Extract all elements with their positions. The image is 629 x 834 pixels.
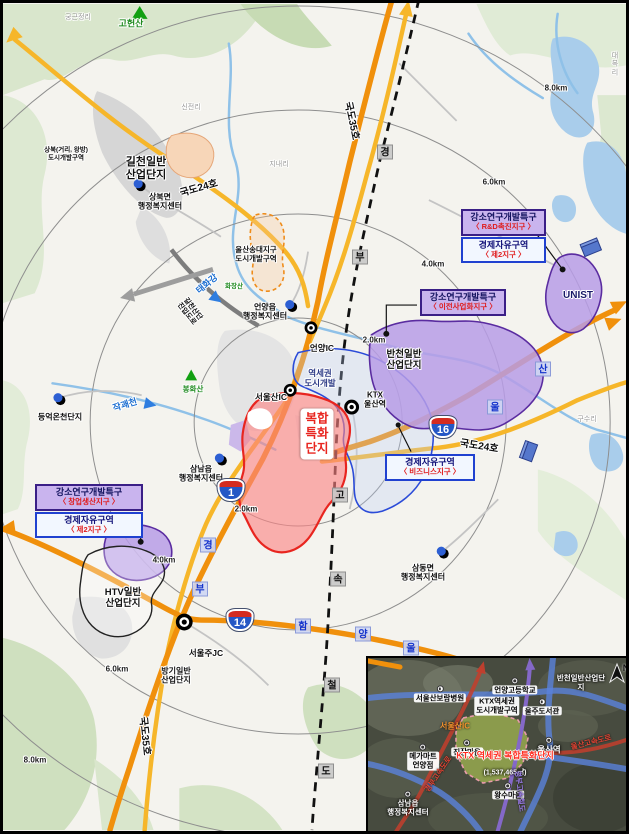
ring-label-4km-sw: 4.0km bbox=[153, 555, 176, 564]
ring-label-2km-sw: 2.0km bbox=[235, 504, 258, 513]
site-label-yeokse-zone: 역세권 도시개발 bbox=[304, 368, 335, 388]
map-pin-icon bbox=[419, 744, 426, 751]
site-label-gilcheon: 길천일반 산업단지 bbox=[126, 156, 166, 182]
business-fez-box-wrap: 경제자유구역 〈 비즈니스지구 〉 bbox=[385, 454, 475, 482]
facility-label-samnam-center: 삼남읍 행정복지센터 bbox=[179, 465, 223, 484]
facility-label-eonyang-center: 언양읍 행정복지센터 bbox=[243, 303, 287, 322]
ulsanhwy-char-san: 산 bbox=[535, 362, 551, 377]
site-label-htv: HTV일반 산업단지 bbox=[105, 587, 141, 609]
inset-label-boram-hospital: 서울산보람병원 bbox=[414, 685, 466, 702]
gyeongbu-char-bu: 부 bbox=[192, 582, 208, 597]
map-pin-icon bbox=[437, 685, 444, 692]
mountain-label-goheonsan: 고헌산 bbox=[119, 19, 144, 30]
facility-label-sangbuk-center: 상북면 행정복지센터 bbox=[138, 193, 182, 212]
ulsanhwy-char-ul: 울 bbox=[487, 400, 503, 415]
htv-zone-boxes: 강소연구개발특구 〈 창업생산지구 〉 경제자유구역 〈 제2지구 〉 bbox=[35, 484, 143, 539]
satellite-inset-map: 서울산보람병원 언양고등학교 반천일반산업단지 울주도서관 KTX역세권 도시개… bbox=[366, 656, 629, 834]
inset-label-seoulsan-ic: 서울산IC bbox=[440, 721, 470, 732]
inset-label-samnam-center: 삼남읍 행정복지센터 bbox=[387, 791, 428, 818]
business-fez-sub: 〈 비즈니스지구 〉 bbox=[389, 468, 471, 476]
inset-north-label: N bbox=[623, 663, 629, 673]
deungeok-marker bbox=[53, 393, 65, 405]
bancheon-sez-sub: 〈 이전사업화지구 〉 bbox=[424, 303, 502, 311]
place-label-jinae: 지내리 bbox=[269, 161, 288, 169]
map-pin-icon bbox=[539, 698, 546, 705]
facility-label-ktx-station: KTX 울산역 bbox=[364, 391, 386, 410]
ktx-station-marker bbox=[344, 400, 359, 415]
sangbuk-zone-polygon bbox=[166, 133, 214, 178]
mountain-label-hwajangsan: 화장산 bbox=[225, 283, 243, 291]
site-label-bancheon: 반천일반 산업단지 bbox=[387, 349, 422, 371]
site-label-banggi: 방기일반 산업단지 bbox=[161, 667, 190, 686]
building-icon-1 bbox=[580, 238, 601, 257]
ring-label-6km-sw: 6.0km bbox=[106, 664, 129, 673]
hamyang-char-yang: 양 bbox=[355, 627, 371, 642]
ring-label-8km-sw: 8.0km bbox=[24, 755, 47, 764]
site-label-songdae-zone: 울산송대지구 도시개발구역 bbox=[235, 246, 276, 264]
map-pin-icon bbox=[463, 739, 470, 746]
htv-fez-sub: 〈 제2지구 〉 bbox=[39, 526, 139, 534]
bonghwasan-triangle bbox=[185, 369, 197, 380]
business-fez-box: 경제자유구역 〈 비즈니스지구 〉 bbox=[385, 454, 475, 481]
place-label-daebok: 대복리 bbox=[610, 53, 621, 78]
place-label-gunggeunjeong: 궁근정리 bbox=[65, 14, 91, 22]
hamyang-char-ham: 함 bbox=[295, 619, 311, 634]
mountain-label-bonghwasan: 봉화산 bbox=[183, 386, 204, 395]
inset-label-ulju-library: 울주도서관 bbox=[523, 698, 562, 715]
building-icon-2 bbox=[519, 441, 537, 462]
ring-label-4km-ne: 4.0km bbox=[422, 259, 445, 268]
facility-label-seoulsan-ic: 서울산IC bbox=[255, 392, 287, 402]
map-pin-icon bbox=[405, 791, 412, 798]
map-pin-icon bbox=[512, 677, 519, 684]
facility-label-samdong-center: 삼동면 행정복지센터 bbox=[401, 564, 445, 583]
unist-sez-sub: 〈 R&D촉진지구 〉 bbox=[465, 223, 542, 231]
unist-zone-boxes: 강소연구개발특구 〈 R&D촉진지구 〉 경제자유구역 〈 제2지구 〉 bbox=[461, 209, 546, 264]
htv-sez-box: 강소연구개발특구 〈 창업생산지구 〉 bbox=[35, 484, 143, 511]
ktx-char-cheol: 철 bbox=[324, 678, 340, 693]
ring-label-8km-ne: 8.0km bbox=[545, 83, 568, 92]
ktx-ulsan-area-map: 8.0km 6.0km 4.0km 2.0km 2.0km 4.0km 6.0k… bbox=[0, 0, 629, 834]
map-pin-icon bbox=[546, 737, 553, 744]
inset-label-hybrid-site: KTX 역세권 복합특화단지 bbox=[456, 749, 554, 762]
hamyang-char-ul: 울 bbox=[403, 641, 419, 656]
place-label-sinjeon: 신전리 bbox=[181, 104, 200, 112]
ktx-char-do: 도 bbox=[318, 764, 334, 779]
site-label-unist: UNIST bbox=[563, 290, 593, 302]
htv-fez-box: 경제자유구역 〈 제2지구 〉 bbox=[35, 512, 143, 539]
facility-label-seoulju-jc: 서울주JC bbox=[189, 648, 223, 658]
seoulju-jc-marker bbox=[176, 614, 193, 631]
ring-label-2km-ne: 2.0km bbox=[363, 335, 386, 344]
inset-label-megamart: 메가마트 언양점 bbox=[407, 744, 439, 771]
ring-label-6km-ne: 6.0km bbox=[483, 177, 506, 186]
facility-label-eonyang-ic: 언양IC bbox=[310, 343, 334, 353]
ktx-char-gyeong: 경 bbox=[377, 145, 393, 160]
inset-label-eonyang-hs: 언양고등학교 bbox=[492, 677, 537, 694]
htv-sez-sub: 〈 창업생산지구 〉 bbox=[39, 498, 139, 506]
ktx-char-sok: 속 bbox=[330, 572, 346, 587]
site-label-deungeok: 등억온천단지 bbox=[38, 412, 82, 421]
site-label-hybrid: 복합 특화 단지 bbox=[300, 409, 333, 460]
bancheon-sez-box: 강소연구개발특구 〈 이전사업화지구 〉 bbox=[420, 289, 506, 316]
map-pin-icon bbox=[504, 782, 511, 789]
ktx-char-go: 고 bbox=[332, 488, 348, 503]
place-label-gusu: 구수리 bbox=[577, 416, 596, 424]
unist-sez-box: 강소연구개발특구 〈 R&D촉진지구 〉 bbox=[461, 209, 546, 236]
bancheon-zone-box: 강소연구개발특구 〈 이전사업화지구 〉 bbox=[420, 289, 506, 317]
unist-fez-box: 경제자유구역 〈 제2지구 〉 bbox=[461, 237, 546, 264]
inset-label-ktx-zone: KTX역세권 도시개발구역 bbox=[474, 697, 519, 716]
ktx-char-bu: 부 bbox=[352, 250, 368, 265]
eonyang-ic-marker bbox=[305, 321, 318, 334]
inset-label-bancheon: 반천일반산업단지 bbox=[556, 674, 607, 693]
bancheon-polygon bbox=[369, 320, 543, 430]
gyeongbu-char-gyeong: 경 bbox=[200, 538, 216, 553]
site-label-sangbuk-zone: 상북(거리, 왕방) 도시개발구역 bbox=[44, 146, 88, 161]
unist-fez-sub: 〈 제2지구 〉 bbox=[465, 251, 542, 259]
